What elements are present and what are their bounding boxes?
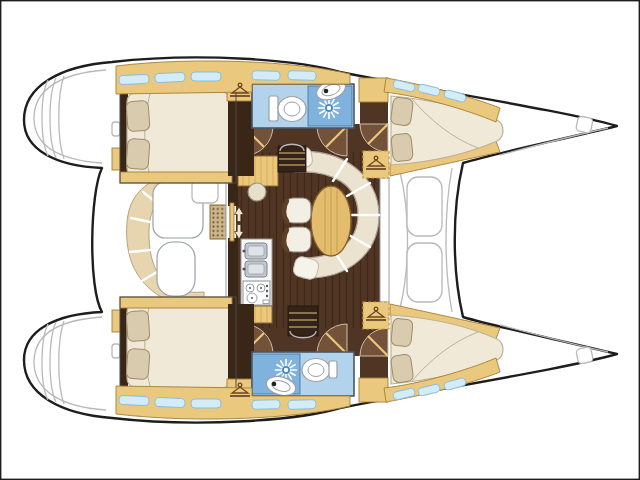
stbd-aft-cabin — [120, 297, 254, 401]
transom-cleat — [112, 122, 120, 136]
hull-window — [191, 399, 221, 408]
toilet-icon — [302, 359, 337, 382]
toilet-icon — [269, 96, 306, 122]
hull-window — [155, 72, 185, 82]
transom-cleat — [112, 344, 120, 358]
hull-window — [119, 74, 149, 85]
pillow — [126, 100, 150, 131]
bow-locker — [576, 346, 594, 364]
wardrobe-dashed — [363, 302, 389, 329]
catamaran-layout-plan — [0, 0, 640, 480]
cockpit-table — [157, 242, 195, 296]
foredeck-locker — [407, 243, 442, 302]
fwd-shelf — [359, 378, 388, 402]
pillow — [126, 310, 150, 341]
stove-burners-icon — [243, 281, 270, 305]
door-track — [230, 203, 234, 241]
companionway-steps-port — [278, 144, 306, 172]
pillow — [126, 138, 150, 169]
companionway-steps-stbd — [288, 306, 318, 338]
foredeck-locker — [407, 177, 442, 236]
hull-window — [191, 72, 221, 81]
cabin-shelf — [120, 297, 232, 308]
pillow — [390, 97, 414, 127]
floor-plan-svg — [0, 0, 640, 480]
saloon-chair — [284, 198, 311, 223]
wardrobe-dashed — [363, 151, 389, 178]
cabin-wall — [228, 304, 254, 380]
forward-door — [380, 178, 389, 302]
saloon-chair — [284, 227, 311, 252]
pillow — [390, 354, 414, 384]
stbd-head — [252, 352, 354, 399]
hull-window — [288, 71, 316, 81]
chart-table-stool — [248, 183, 266, 201]
fwd-shelf — [359, 78, 388, 102]
cabin-wall — [228, 100, 254, 176]
pillow — [391, 133, 414, 162]
hull-window — [252, 71, 280, 80]
hull-window — [119, 395, 149, 406]
hull-window — [288, 400, 316, 410]
port-aft-cabin — [120, 79, 254, 183]
bow-locker — [575, 116, 593, 134]
hull-window — [252, 400, 280, 409]
pillow — [391, 318, 414, 347]
cabin-shelf — [120, 172, 232, 183]
pillow — [126, 348, 150, 379]
hull-window — [155, 397, 185, 407]
